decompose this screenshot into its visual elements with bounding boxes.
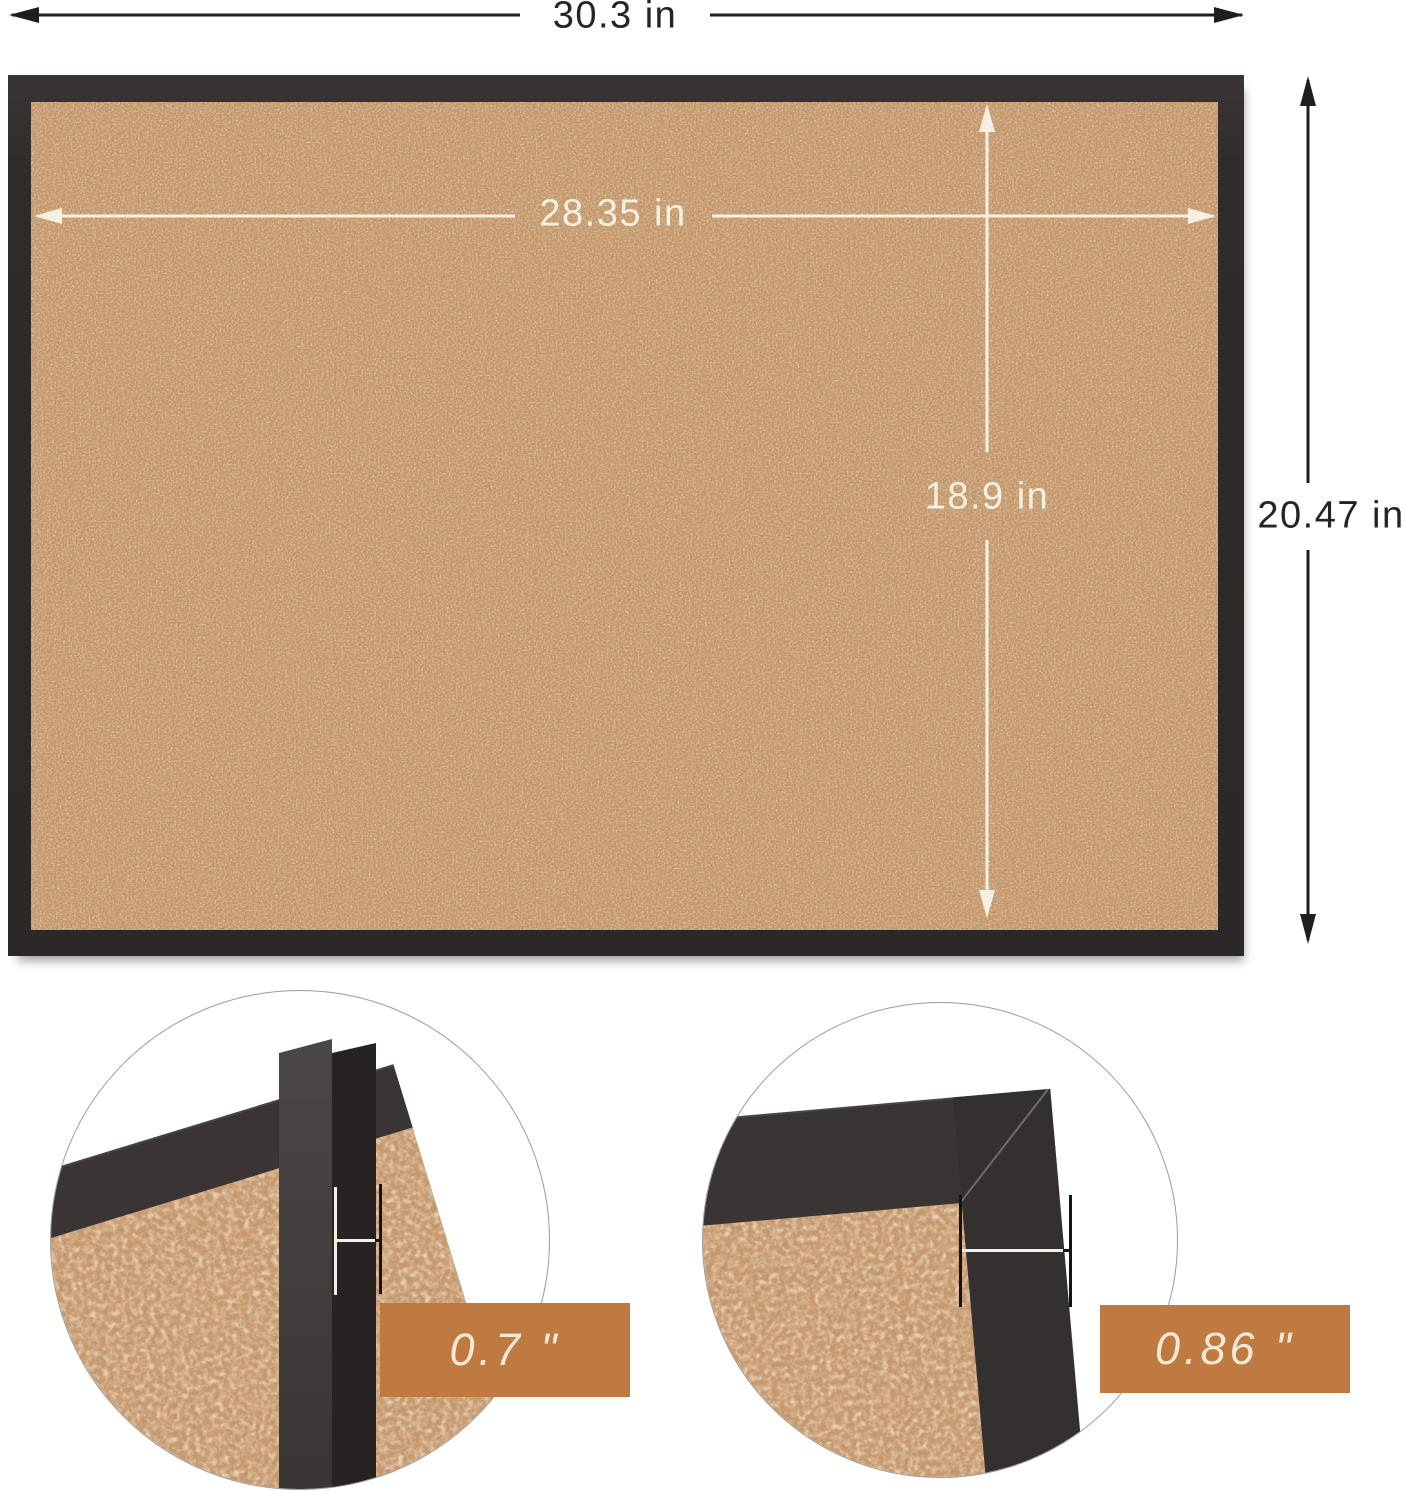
corner-group [702,1002,1178,1478]
thickness-marker-bar-light [962,1249,1063,1252]
edge-thickness-label: 0.7 " [380,1303,630,1397]
cork-width-label: 28.35 in [539,193,686,236]
frame-side-face [332,1043,376,1490]
corner-thickness-label: 0.86 " [1100,1305,1350,1393]
miter-joint-line [702,1002,1178,1478]
detail-view-edge-profile [50,990,550,1490]
thickness-marker-bar-dark [375,1239,382,1242]
corner-thickness-value: 0.86 " [1155,1323,1295,1375]
thickness-marker-bar-light [337,1239,375,1242]
outer-height-label: 20.47 in [1257,495,1404,538]
cork-board-dimension-diagram: 30.3 in 28.35 in 18.9 in 20.47 in [0,0,1407,1500]
frame-front-face [279,1039,332,1490]
outer-width-label: 30.3 in [553,0,678,38]
cork-height-label: 18.9 in [925,476,1050,519]
thickness-marker-bar-dark [1063,1249,1070,1252]
edge-thickness-value: 0.7 " [449,1324,560,1376]
detail-view-corner [702,1002,1178,1478]
